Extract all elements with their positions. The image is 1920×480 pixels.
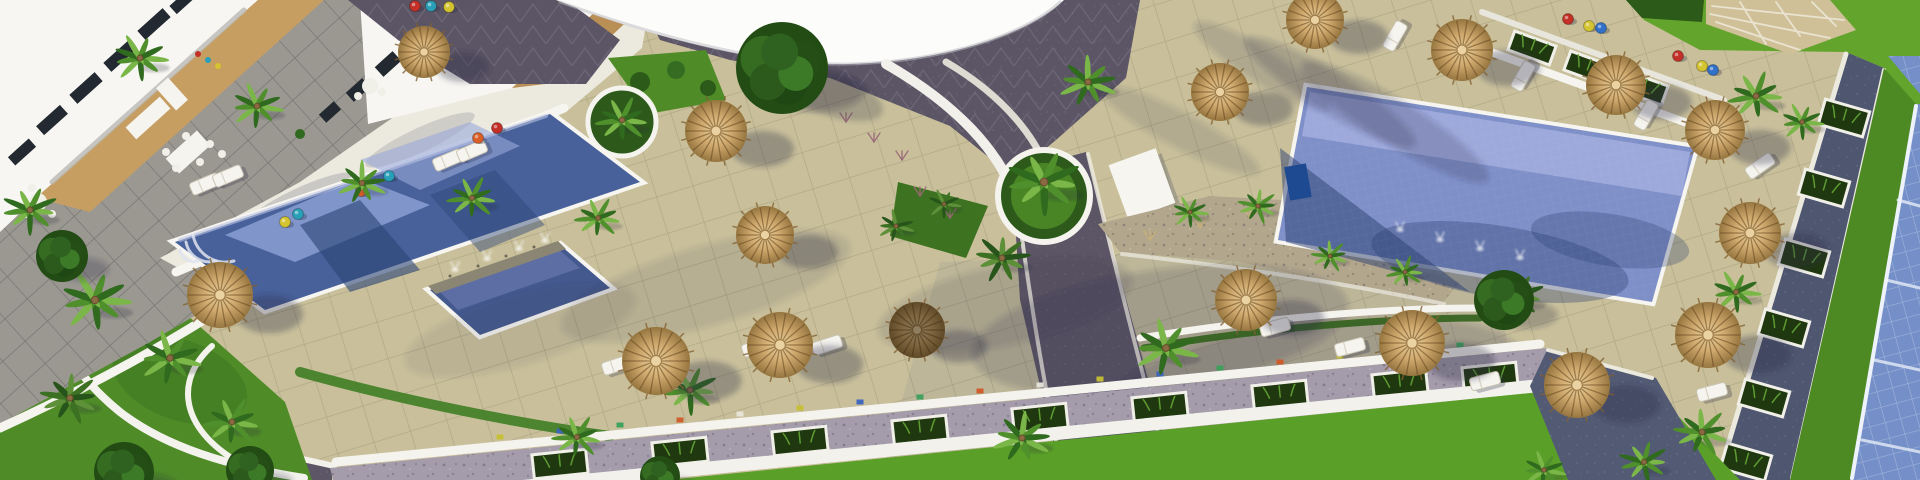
resort-scene-canvas [0,0,1920,480]
scene-root [0,0,1920,480]
aerial-resort-render [0,0,1920,480]
